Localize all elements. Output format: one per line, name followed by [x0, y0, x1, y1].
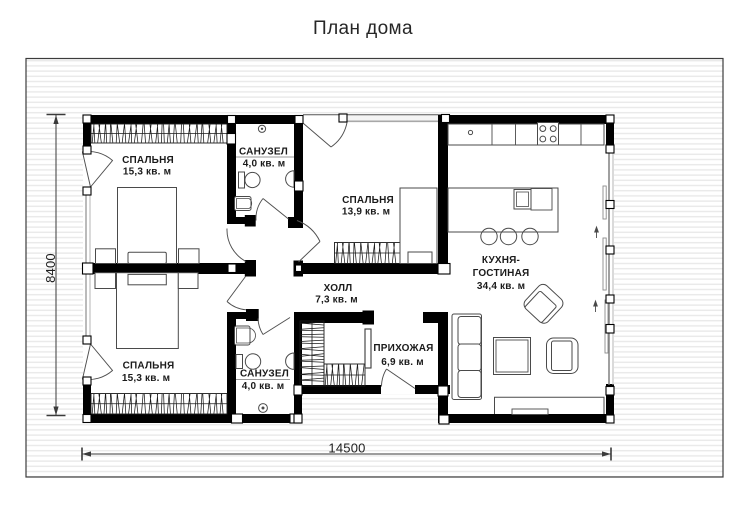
- svg-text:СПАЛЬНЯ: СПАЛЬНЯ: [123, 361, 175, 372]
- svg-text:4,0 кв. м: 4,0 кв. м: [243, 159, 286, 170]
- svg-text:СПАЛЬНЯ: СПАЛЬНЯ: [122, 155, 174, 166]
- svg-text:САНУЗЕЛ: САНУЗЕЛ: [240, 369, 289, 380]
- svg-text:15,3 кв. м: 15,3 кв. м: [122, 373, 170, 384]
- svg-text:ГОСТИНАЯ: ГОСТИНАЯ: [473, 268, 530, 279]
- svg-text:СПАЛЬНЯ: СПАЛЬНЯ: [342, 195, 394, 206]
- svg-text:8400: 8400: [43, 253, 58, 283]
- svg-text:КУХНЯ-: КУХНЯ-: [482, 255, 520, 266]
- svg-text:34,4 кв. м: 34,4 кв. м: [477, 281, 525, 292]
- svg-text:6,9 кв. м: 6,9 кв. м: [381, 357, 424, 368]
- svg-text:4,0 кв. м: 4,0 кв. м: [242, 381, 285, 392]
- svg-text:ХОЛЛ: ХОЛЛ: [324, 283, 353, 294]
- svg-text:САНУЗЕЛ: САНУЗЕЛ: [239, 147, 288, 158]
- svg-text:13,9 кв. м: 13,9 кв. м: [342, 207, 390, 218]
- svg-text:ПРИХОЖАЯ: ПРИХОЖАЯ: [373, 343, 433, 354]
- svg-text:15,3 кв. м: 15,3 кв. м: [123, 167, 171, 178]
- svg-text:7,3 кв. м: 7,3 кв. м: [315, 295, 358, 306]
- svg-text:14500: 14500: [328, 441, 365, 456]
- svg-text:План дома: План дома: [313, 18, 413, 39]
